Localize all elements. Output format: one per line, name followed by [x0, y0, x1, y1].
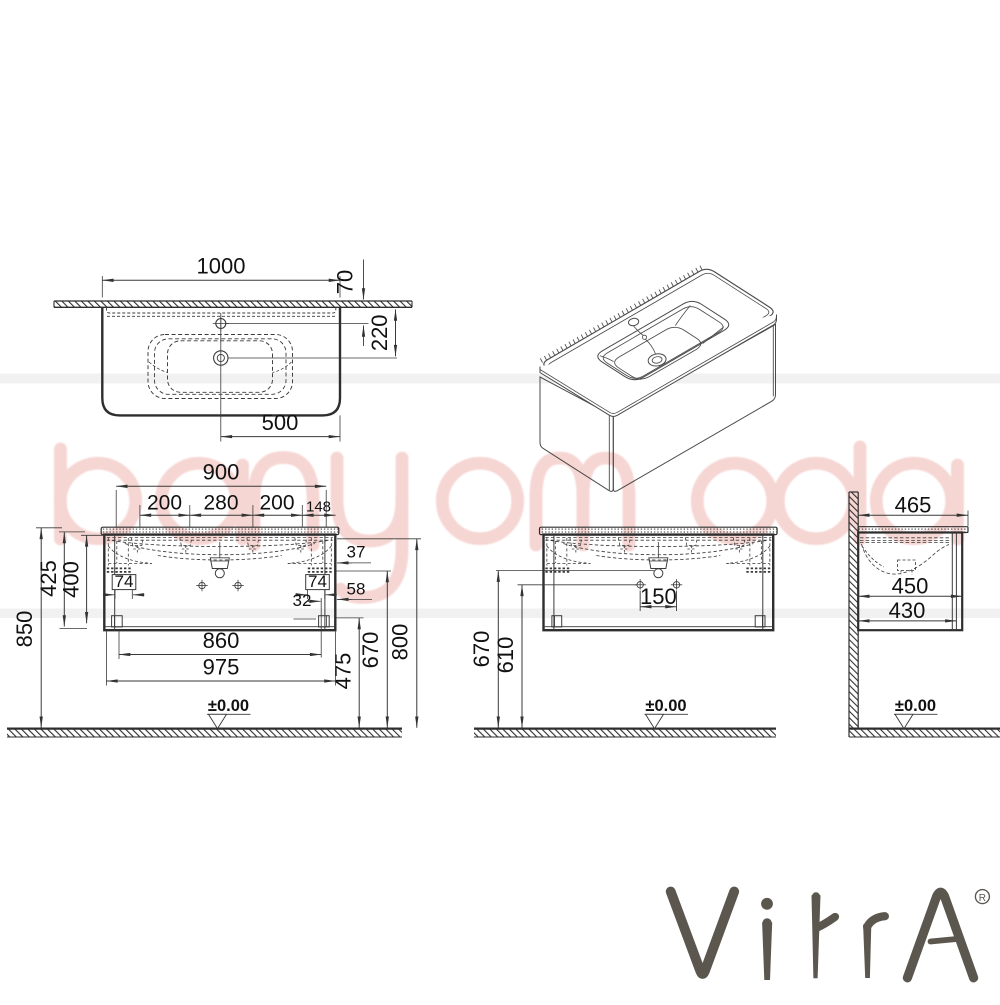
svg-text:37: 37 — [347, 542, 366, 561]
svg-text:58: 58 — [347, 579, 366, 598]
svg-text:70: 70 — [333, 270, 358, 294]
svg-text:465: 465 — [895, 493, 932, 518]
svg-text:430: 430 — [889, 598, 926, 623]
svg-text:148: 148 — [306, 499, 331, 516]
svg-text:500: 500 — [262, 410, 299, 435]
svg-text:74: 74 — [115, 572, 134, 591]
svg-text:200: 200 — [147, 492, 182, 515]
svg-text:975: 975 — [203, 655, 240, 680]
svg-text:400: 400 — [59, 561, 84, 598]
svg-text:150: 150 — [640, 584, 677, 609]
svg-text:1000: 1000 — [197, 254, 246, 279]
svg-text:±0.00: ±0.00 — [895, 697, 936, 715]
svg-text:74: 74 — [308, 572, 327, 591]
svg-text:450: 450 — [892, 574, 929, 599]
svg-text:280: 280 — [203, 492, 238, 515]
svg-text:670: 670 — [358, 632, 383, 669]
svg-text:475: 475 — [331, 653, 356, 690]
svg-text:425: 425 — [36, 560, 61, 597]
svg-text:670: 670 — [469, 631, 494, 668]
svg-text:610: 610 — [493, 637, 518, 674]
svg-text:32: 32 — [293, 591, 312, 610]
svg-text:R: R — [979, 893, 986, 904]
svg-text:±0.00: ±0.00 — [645, 697, 686, 715]
svg-text:860: 860 — [203, 628, 240, 653]
svg-text:850: 850 — [12, 611, 37, 648]
svg-text:±0.00: ±0.00 — [208, 697, 249, 715]
svg-text:200: 200 — [259, 492, 294, 515]
svg-text:800: 800 — [388, 624, 413, 661]
svg-text:900: 900 — [203, 460, 240, 485]
svg-text:220: 220 — [367, 314, 392, 351]
